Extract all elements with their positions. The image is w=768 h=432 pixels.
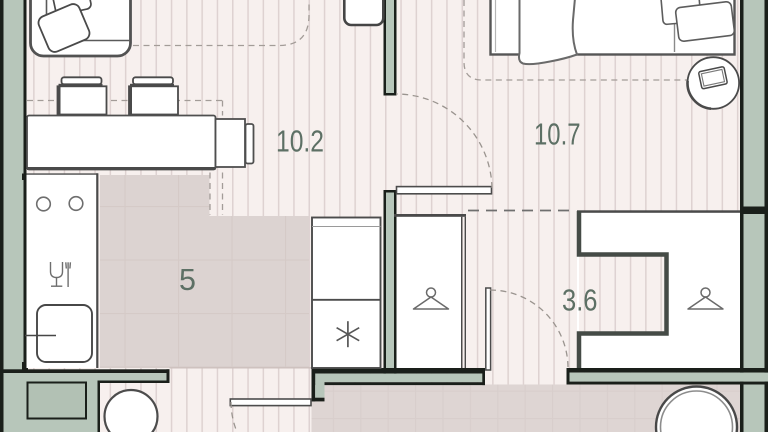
svg-text:10.7: 10.7 (534, 117, 581, 152)
svg-text:3.6: 3.6 (562, 282, 598, 317)
svg-text:10.2: 10.2 (276, 124, 324, 159)
svg-text:5: 5 (179, 263, 196, 297)
